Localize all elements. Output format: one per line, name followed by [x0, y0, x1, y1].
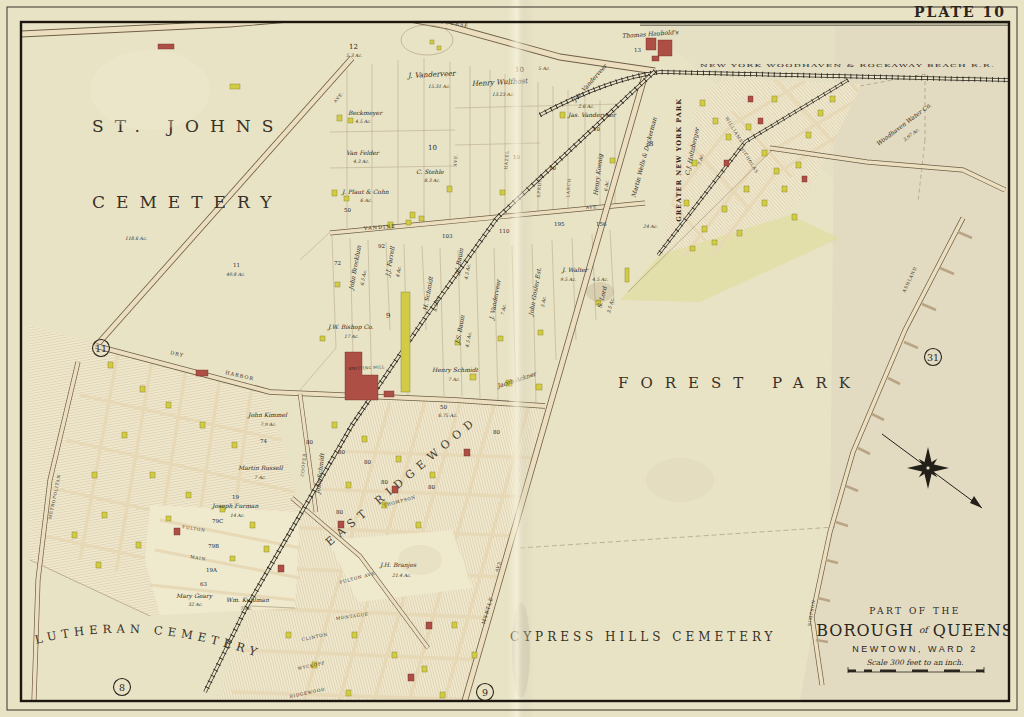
svg-text:8.3 Ac.: 8.3 Ac. [424, 178, 441, 183]
svg-text:7 Ac.: 7 Ac. [448, 377, 460, 382]
svg-text:80: 80 [428, 484, 435, 490]
svg-text:Van Felder: Van Felder [346, 149, 380, 156]
svg-text:80: 80 [336, 509, 343, 515]
svg-text:4.5 Ac.: 4.5 Ac. [592, 277, 609, 282]
circled-number-9: 9 [482, 687, 488, 698]
svg-text:80: 80 [338, 449, 345, 455]
svg-text:Henry Schmidt: Henry Schmidt [432, 366, 479, 374]
label-greater-ny-park: GREATER NEW YORK PARK [675, 98, 683, 222]
scan-crease [508, 0, 534, 717]
svg-text:Beckmeyer: Beckmeyer [348, 109, 383, 117]
svg-text:J. Plaut & Cohn: J. Plaut & Cohn [341, 188, 389, 196]
svg-text:72: 72 [334, 260, 341, 266]
svg-text:63: 63 [200, 581, 207, 587]
svg-text:118.6 Ac.: 118.6 Ac. [125, 236, 148, 241]
svg-text:10: 10 [428, 144, 437, 152]
title-borough-of-queens: BOROUGH of QUEENS [816, 618, 1013, 640]
svg-text:AVE.: AVE. [585, 204, 600, 210]
svg-text:103: 103 [442, 233, 453, 239]
svg-text:J. Walter: J. Walter [561, 266, 589, 274]
svg-text:80: 80 [493, 429, 500, 435]
svg-text:Joseph Furman: Joseph Furman [211, 502, 258, 510]
svg-text:13: 13 [634, 47, 641, 53]
svg-text:10: 10 [593, 126, 600, 132]
atlas-plate-map: ST. JOHNS CEMETERY FOREST PARK CYPRESS H… [0, 0, 1024, 717]
svg-text:32 Ac.: 32 Ac. [188, 602, 203, 607]
svg-text:21.4 Ac.: 21.4 Ac. [392, 573, 412, 578]
svg-text:C. Stehle: C. Stehle [416, 168, 444, 175]
svg-text:Mary Geary: Mary Geary [176, 592, 214, 600]
circled-number-8: 8 [119, 682, 125, 693]
map-canvas: ST. JOHNS CEMETERY FOREST PARK CYPRESS H… [0, 0, 1024, 717]
plate-number: PLATE 10 [914, 4, 1006, 20]
svg-text:79C: 79C [212, 518, 223, 524]
railroad-label: NEW YORK WOODHAVEN & ROCKAWAY BEACH R.R. [700, 63, 995, 68]
title-scale-note: Scale 300 feet to an inch. [866, 658, 963, 667]
svg-text:156: 156 [596, 221, 607, 227]
svg-text:14 Ac.: 14 Ac. [230, 513, 245, 518]
svg-text:2.6 Ac.: 2.6 Ac. [578, 104, 595, 109]
svg-text:15.31 Ac.: 15.31 Ac. [428, 84, 451, 89]
svg-text:80: 80 [364, 459, 371, 465]
svg-text:4.3 Ac.: 4.3 Ac. [353, 159, 370, 164]
svg-text:6 Ac.: 6 Ac. [360, 198, 372, 203]
circled-number-11: 11 [95, 343, 107, 354]
svg-text:195: 195 [554, 221, 565, 227]
svg-text:John Kimmel: John Kimmel [247, 411, 288, 419]
svg-text:7.9 Ac.: 7.9 Ac. [260, 422, 277, 427]
svg-text:Martin Russell: Martin Russell [238, 464, 284, 471]
title-part-of: PART OF THE [869, 606, 961, 616]
svg-text:Wm. Kuhlman: Wm. Kuhlman [226, 596, 269, 603]
svg-text:J.W. Bishop Co.: J.W. Bishop Co. [327, 323, 374, 331]
title-newtown-ward: NEWTOWN, WARD 2 [852, 644, 978, 654]
svg-text:80: 80 [306, 439, 313, 445]
region-label-cypress-hills: CYPRESS HILLS CEMETERY [510, 630, 777, 644]
svg-text:6.75 Ac.: 6.75 Ac. [438, 413, 458, 418]
svg-text:92: 92 [378, 243, 385, 249]
svg-text:Jas. Vanderveer: Jas. Vanderveer [567, 111, 617, 119]
svg-text:17 Ac.: 17 Ac. [344, 334, 359, 339]
svg-text:12: 12 [349, 43, 358, 51]
svg-text:40.8 Ac.: 40.8 Ac. [226, 272, 246, 277]
svg-text:50: 50 [440, 404, 447, 410]
svg-text:7 Ac.: 7 Ac. [240, 606, 252, 611]
svg-text:5.3 Ac.: 5.3 Ac. [346, 53, 363, 58]
svg-text:7 Ac.: 7 Ac. [254, 475, 266, 480]
svg-text:50: 50 [344, 207, 351, 213]
svg-text:19A: 19A [206, 567, 218, 573]
svg-text:24 Ac.: 24 Ac. [643, 224, 658, 229]
svg-text:11: 11 [233, 262, 240, 268]
svg-text:19: 19 [232, 494, 239, 500]
circled-number-31: 31 [927, 352, 939, 363]
region-label-forest-park: FOREST PARK [618, 374, 862, 392]
svg-text:4.5 Ac.: 4.5 Ac. [355, 119, 372, 124]
svg-text:74: 74 [260, 438, 267, 444]
svg-text:9: 9 [386, 312, 390, 320]
svg-text:80: 80 [381, 479, 388, 485]
svg-text:5 Ac.: 5 Ac. [538, 66, 550, 71]
svg-text:10: 10 [549, 165, 556, 171]
svg-text:9.5 Ac.: 9.5 Ac. [560, 277, 577, 282]
region-label-cemetery: CEMETERY [92, 192, 282, 212]
svg-text:79B: 79B [208, 543, 219, 549]
